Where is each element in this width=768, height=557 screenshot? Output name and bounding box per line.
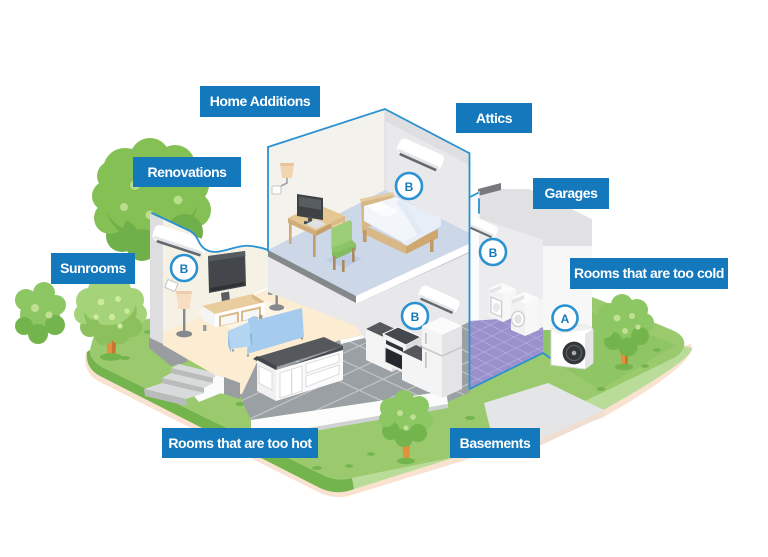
svg-text:Rooms that are too cold: Rooms that are too cold	[574, 265, 724, 281]
svg-text:Garages: Garages	[545, 185, 599, 201]
svg-text:B: B	[180, 262, 189, 276]
svg-text:Sunrooms: Sunrooms	[60, 260, 126, 276]
svg-text:B: B	[411, 310, 420, 324]
svg-text:Rooms that are too hot: Rooms that are too hot	[168, 435, 312, 451]
svg-text:A: A	[561, 312, 570, 326]
svg-text:Renovations: Renovations	[147, 164, 227, 180]
svg-text:B: B	[489, 246, 498, 260]
svg-text:Home Additions: Home Additions	[210, 93, 311, 109]
svg-text:Attics: Attics	[476, 110, 513, 126]
svg-text:Basements: Basements	[460, 435, 531, 451]
svg-text:B: B	[405, 180, 414, 194]
